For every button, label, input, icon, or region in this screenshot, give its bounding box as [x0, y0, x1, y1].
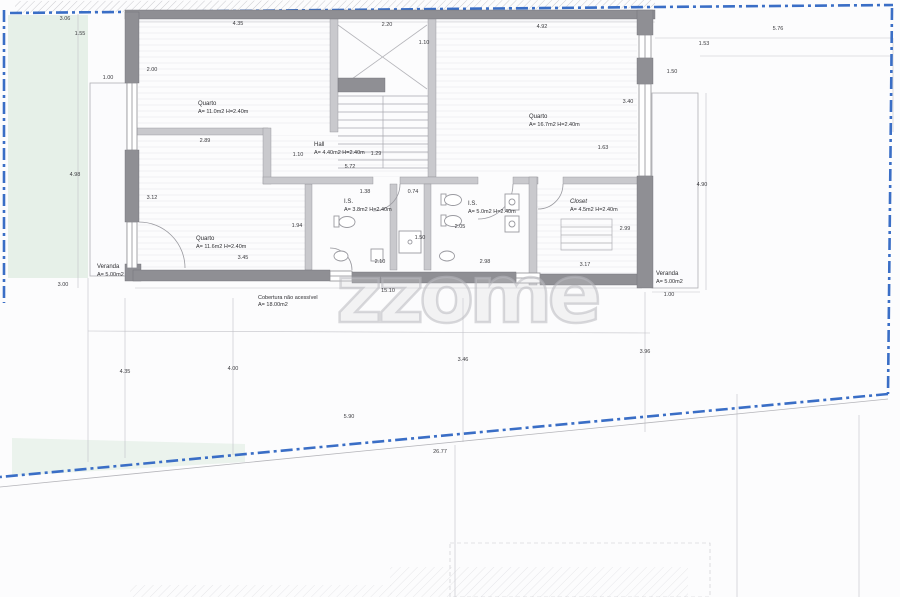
dim-label: 3.06 — [60, 16, 71, 22]
dim-label: 1.10 — [293, 152, 304, 158]
dim-label: 0.74 — [408, 189, 419, 195]
dim-label: 2.00 — [147, 67, 158, 73]
room-name: I.S. — [344, 199, 392, 207]
dim-label: 3.40 — [623, 99, 634, 105]
dim-label: 1.10 — [419, 40, 430, 46]
room-label-is-2: I.S. A= 5.0m2 H=2.40m — [468, 201, 516, 215]
room-name: Veranda — [97, 264, 124, 272]
dim-label: 4.35 — [120, 369, 131, 375]
room-area: A= 5.00m2 — [97, 272, 124, 279]
plan-drawing — [0, 0, 900, 597]
dim-label: 2.10 — [375, 259, 386, 265]
room-label-quarto-bottom-left: Quarto A= 11.6m2 H=2.40m — [196, 236, 246, 250]
dim-label: 1.94 — [292, 223, 303, 229]
dim-label: 1.00 — [103, 75, 114, 81]
dim-label: 3.96 — [640, 349, 651, 355]
room-label-closet: Closet A= 4.5m2 H=2.40m — [570, 199, 618, 213]
room-label-veranda-left: Veranda A= 5.00m2 — [97, 264, 124, 278]
floor-plan-sheet: zzome Quarto A= 11.0m2 H=2.40m Quarto A=… — [0, 0, 900, 597]
dim-label: 2.98 — [480, 259, 491, 265]
dim-label: 1.50 — [667, 69, 678, 75]
dim-label: 3.12 — [147, 195, 158, 201]
dim-label: 4.90 — [697, 182, 708, 188]
room-area: A= 5.0m2 H=2.40m — [468, 209, 516, 216]
dim-label: 26.77 — [433, 449, 447, 455]
room-label-quarto-top-left: Quarto A= 11.0m2 H=2.40m — [198, 101, 248, 115]
dim-label: 3.46 — [458, 357, 469, 363]
room-area: A= 11.6m2 H=2.40m — [196, 244, 246, 251]
dim-label: 2.20 — [382, 22, 393, 28]
room-name: Quarto — [198, 101, 248, 109]
dim-label: 1.53 — [699, 41, 710, 47]
dim-label: 5.72 — [345, 164, 356, 170]
dim-label: 3.00 — [58, 282, 69, 288]
dim-label: 1.38 — [360, 189, 371, 195]
dim-label: 4.98 — [70, 172, 81, 178]
room-label-hall: Hall A= 4.40m2 H=2.40m — [314, 142, 365, 156]
room-name: Quarto — [196, 236, 246, 244]
room-name: Quarto — [529, 114, 580, 122]
dim-label: 15.10 — [381, 288, 395, 294]
room-name: Closet — [570, 199, 618, 207]
room-area: A= 11.0m2 H=2.40m — [198, 109, 248, 116]
room-area: A= 5.00m2 — [656, 279, 683, 286]
room-area: A= 16.7m2 H=2.40m — [529, 122, 580, 129]
room-name: Hall — [314, 142, 365, 150]
room-label-is-1: I.S. A= 3.8m2 H=2.40m — [344, 199, 392, 213]
bottom-hatch — [130, 567, 688, 597]
dim-label: 1.00 — [664, 292, 675, 298]
dim-label: 4.92 — [537, 24, 548, 30]
dim-label: 4.00 — [228, 366, 239, 372]
dim-label: 1.55 — [75, 31, 86, 37]
room-name: I.S. — [468, 201, 516, 209]
room-area: A= 18.00m2 — [258, 302, 318, 309]
dim-label: 1.29 — [371, 151, 382, 157]
dim-label: 2.89 — [200, 138, 211, 144]
room-label-cobertura: Cobertura não acessível A= 18.00m2 — [258, 295, 318, 309]
room-label-quarto-top-right: Quarto A= 16.7m2 H=2.40m — [529, 114, 580, 128]
dim-label: 2.05 — [455, 224, 466, 230]
room-name: Veranda — [656, 271, 683, 279]
room-area: A= 4.40m2 H=2.40m — [314, 150, 365, 157]
dim-label: 4.35 — [233, 21, 244, 27]
dim-label: 2.99 — [620, 226, 631, 232]
dim-label: 5.90 — [344, 414, 355, 420]
dim-label: 1.63 — [598, 145, 609, 151]
room-area: A= 4.5m2 H=2.40m — [570, 207, 618, 214]
dim-label: 3.17 — [580, 262, 591, 268]
room-name: Cobertura não acessível — [258, 295, 318, 302]
room-label-veranda-right: Veranda A= 5.00m2 — [656, 271, 683, 285]
dim-label: 1.50 — [415, 235, 426, 241]
dim-label: 5.76 — [773, 26, 784, 32]
dim-label: 3.45 — [238, 255, 249, 261]
room-area: A= 3.8m2 H=2.40m — [344, 207, 392, 214]
